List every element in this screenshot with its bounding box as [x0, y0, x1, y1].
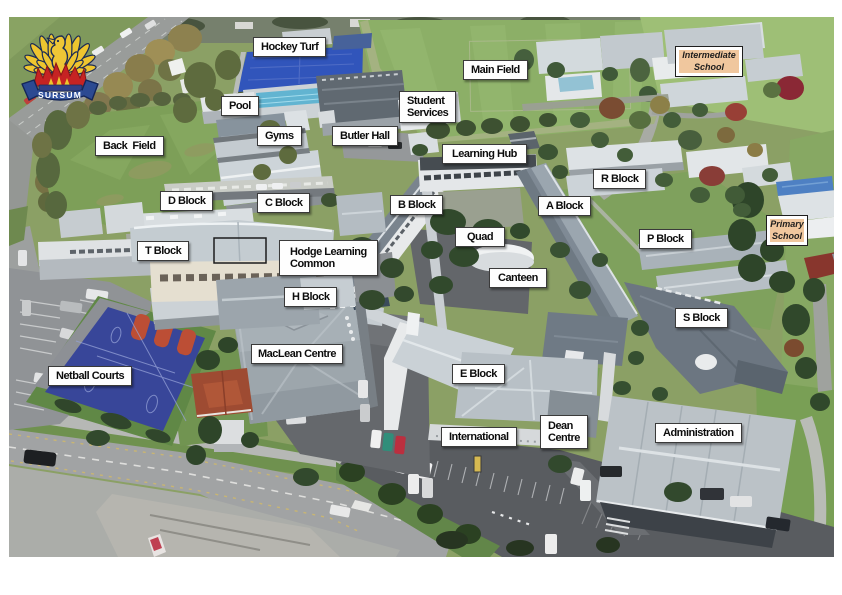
svg-text:SURSUM: SURSUM — [38, 90, 82, 100]
